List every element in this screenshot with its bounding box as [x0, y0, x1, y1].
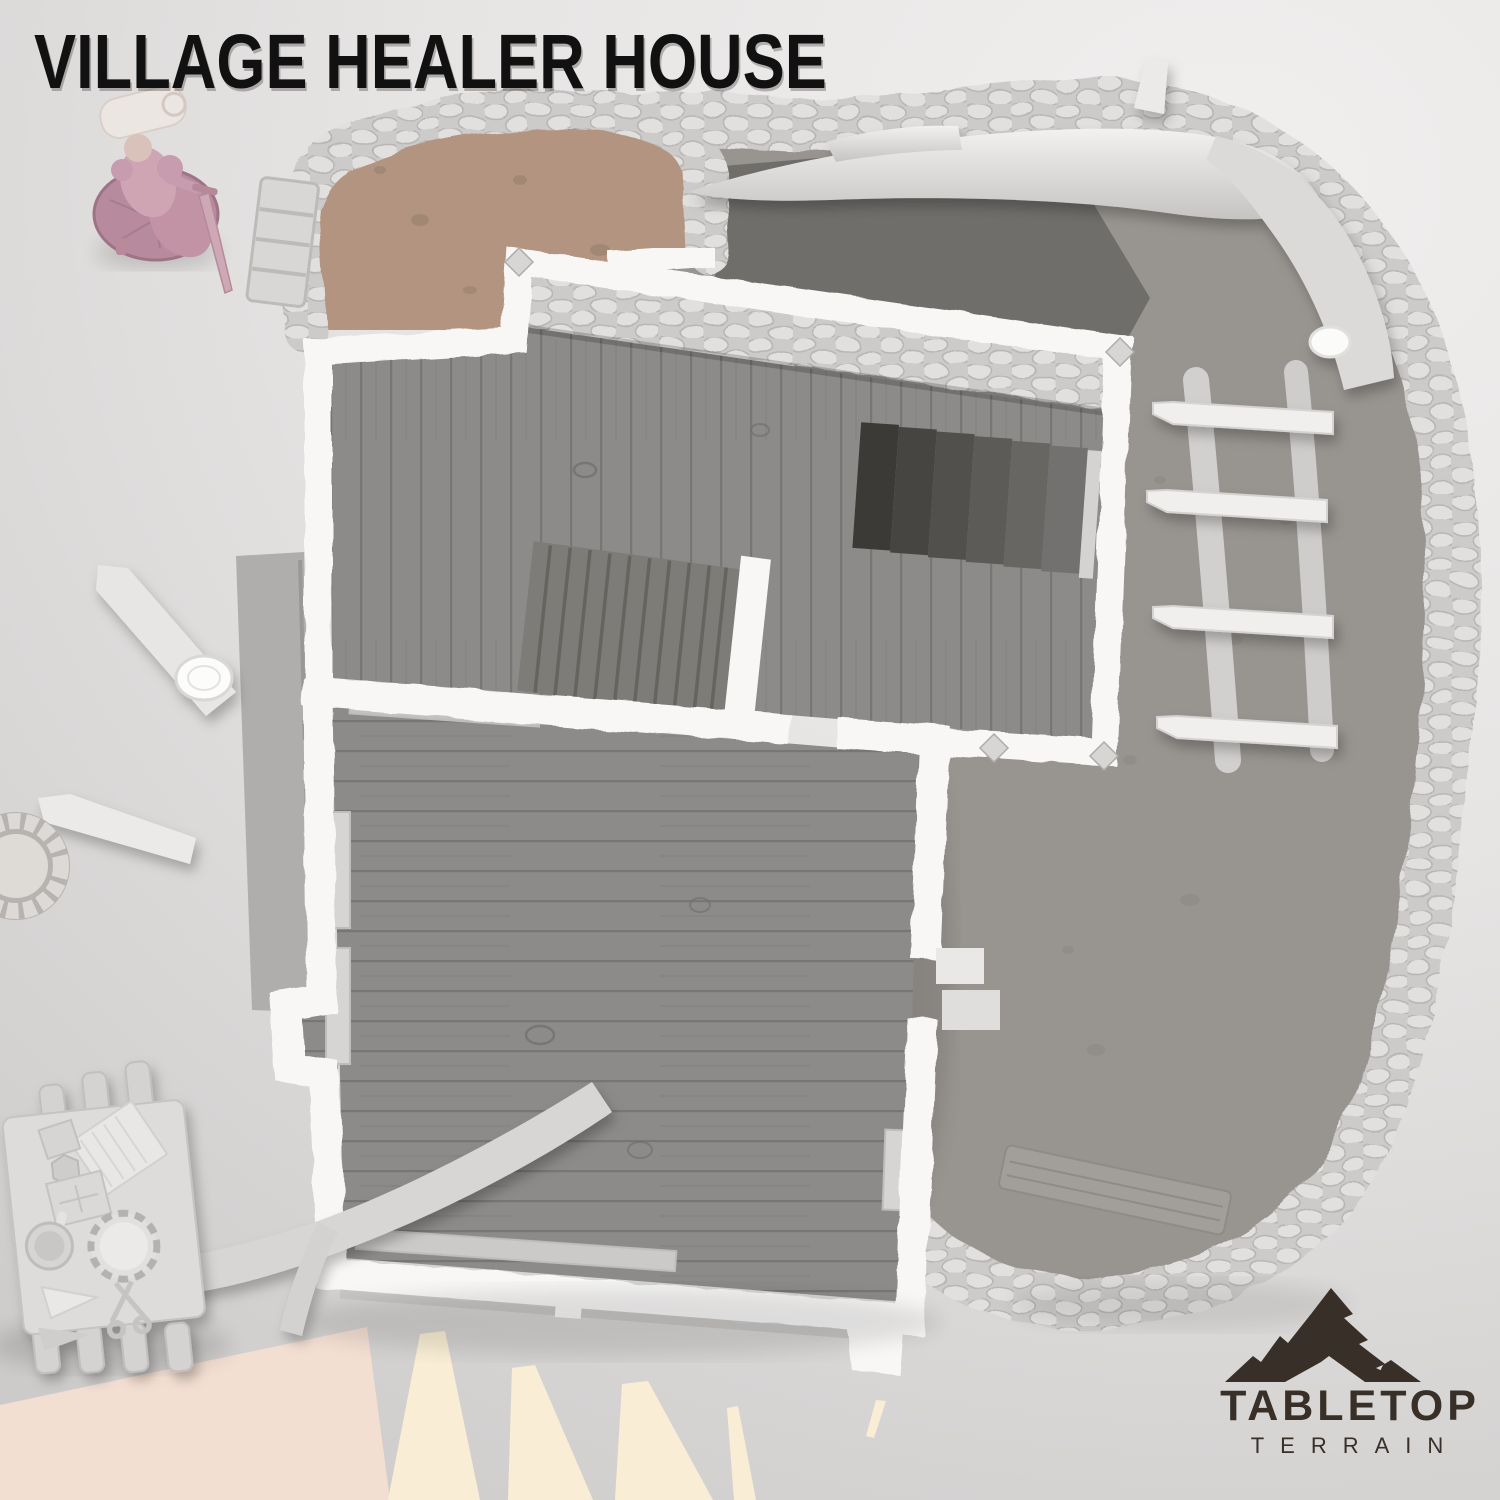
yard-door-step [942, 990, 1000, 1030]
tree-trunk [236, 552, 316, 1012]
brand-logo: TABLETOP TERRAIN [1212, 1282, 1488, 1459]
terrain-render [0, 0, 1500, 1500]
yard-door-step [936, 948, 984, 984]
miniature-adventurer-figure [94, 82, 232, 293]
potion-vial [116, 238, 127, 255]
round-well [0, 812, 70, 920]
figure-head [124, 134, 152, 162]
mountain-logo-icon [1225, 1282, 1475, 1382]
figure-pauldron [111, 159, 133, 181]
cut-branch-end [1310, 327, 1350, 357]
page-title: VILLAGE HEALER HOUSE [34, 18, 827, 107]
light-ray [615, 1381, 713, 1500]
pointed-branches-left [38, 565, 236, 864]
brand-subname: TERRAIN [1212, 1433, 1488, 1459]
light-ray [508, 1365, 593, 1500]
house-shadow [300, 1288, 940, 1356]
main-room [286, 692, 1000, 1376]
cut-log-end [176, 656, 232, 700]
mountain-silhouette [1225, 1288, 1405, 1382]
light-ray [388, 1331, 480, 1500]
product-image: VILLAGE HEALER HOUSE TABLETOP TERRAIN [0, 0, 1500, 1500]
brand-name: TABLETOP [1212, 1384, 1488, 1429]
light-ray [727, 1406, 756, 1500]
light-ray [866, 1400, 886, 1438]
